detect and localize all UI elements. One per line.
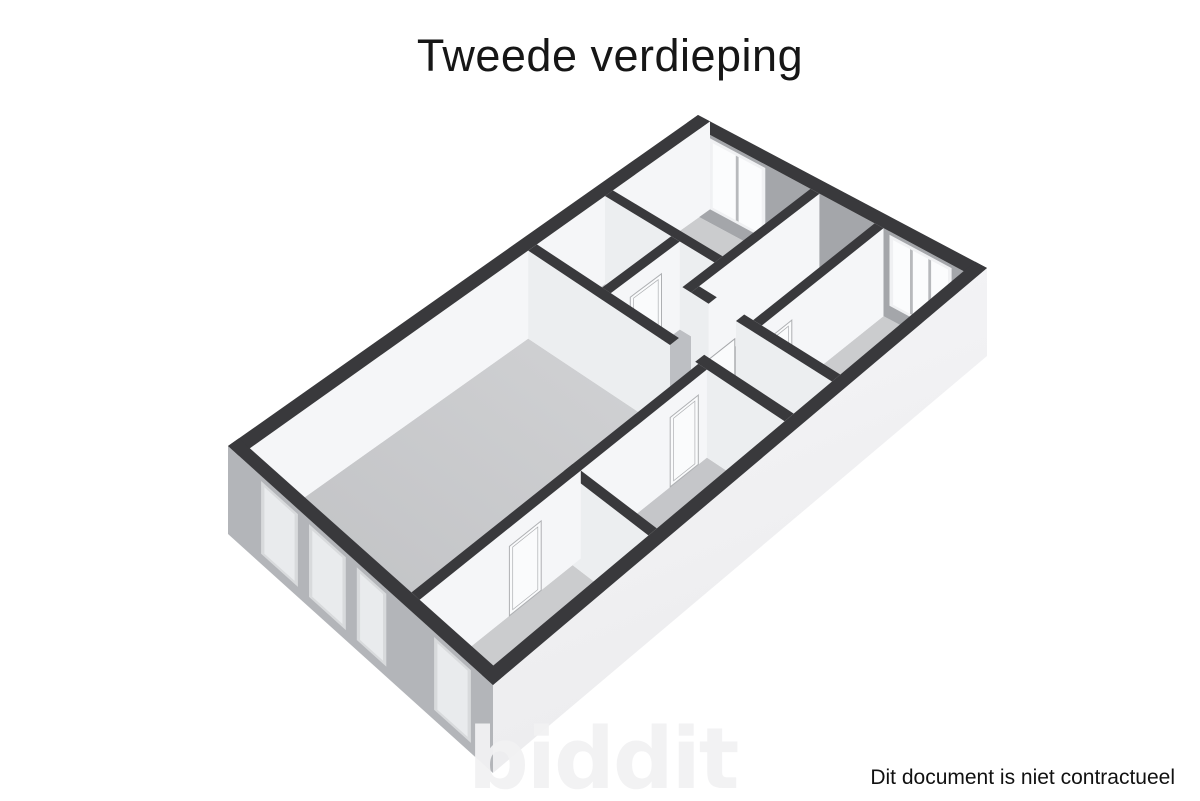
disclaimer-text: Dit document is niet contractueel bbox=[870, 766, 1175, 790]
floorplan-page: Tweede verdieping biddit Dit document is… bbox=[0, 0, 1200, 801]
floorplan-3d-view bbox=[0, 0, 1200, 801]
window-top-room-mullion bbox=[736, 156, 739, 222]
window-right-room-mullion bbox=[910, 249, 913, 315]
